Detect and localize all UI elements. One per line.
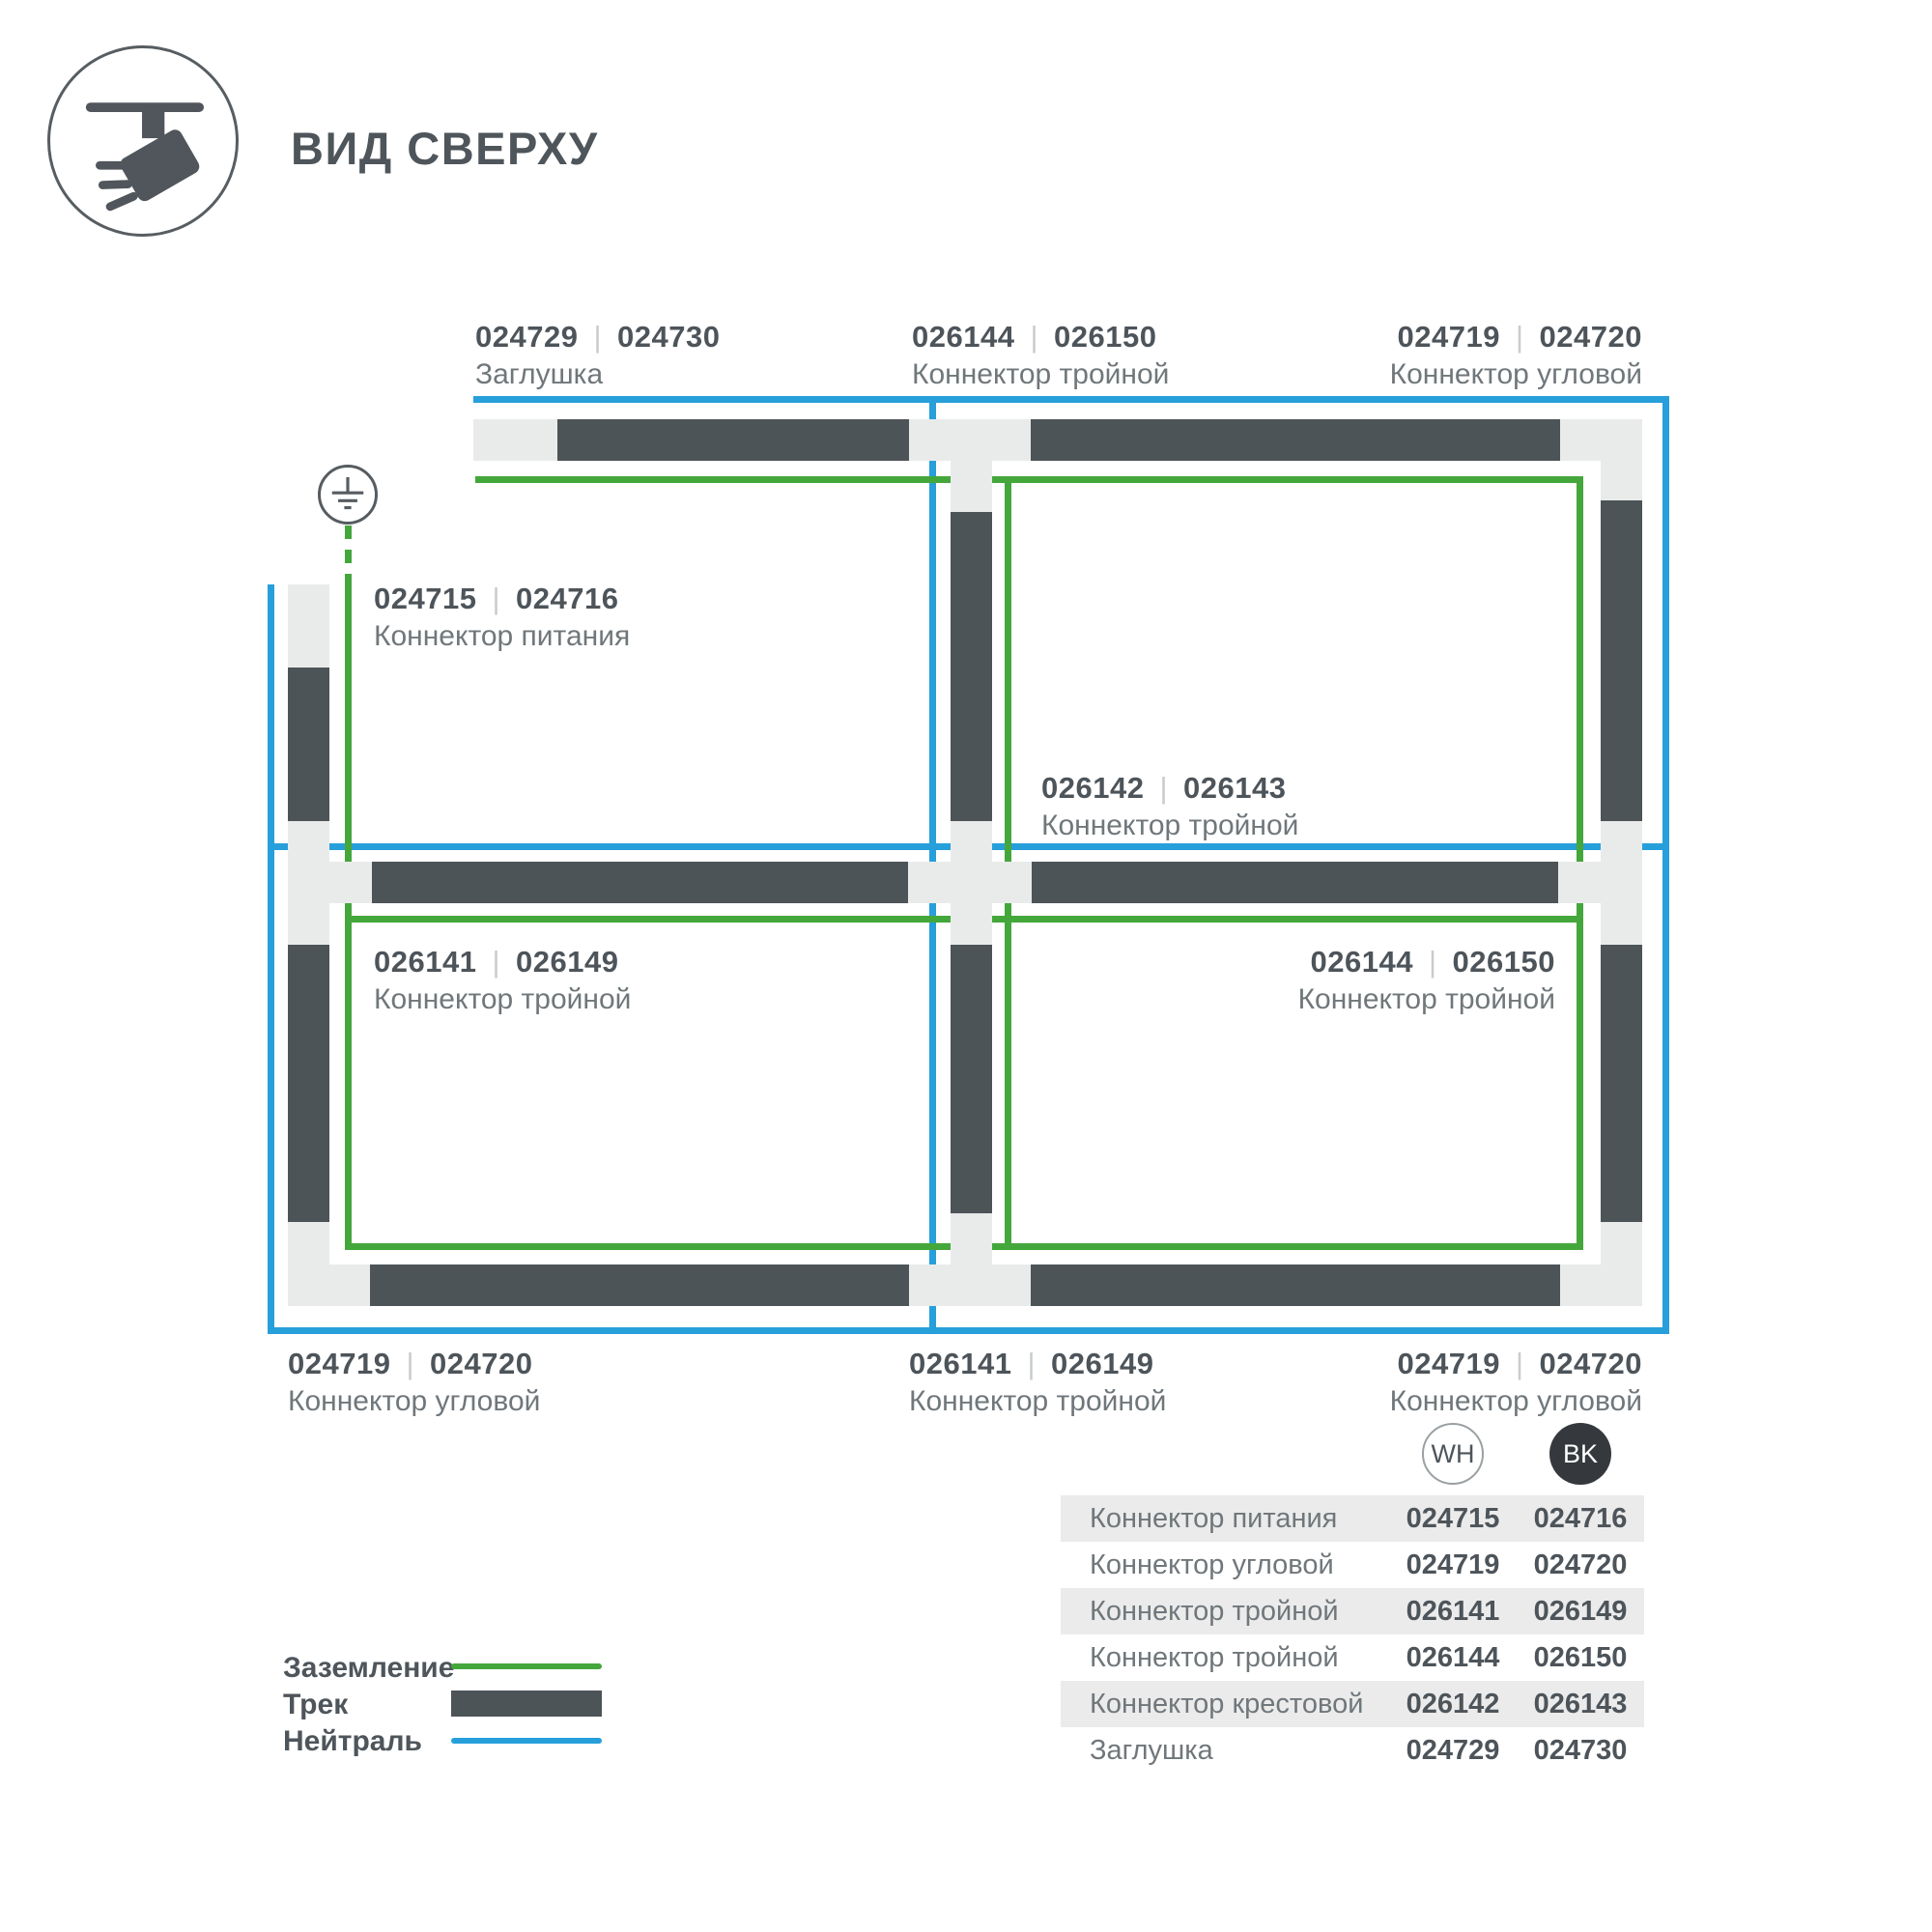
connector-cross-horizontal (908, 862, 1032, 903)
label-tee-top: 026144|026150 Коннектор тройной (912, 322, 1169, 389)
neutral-line-top (473, 396, 1669, 403)
label-cross-connector: 026142|026143 Коннектор тройной (1041, 773, 1298, 840)
legend-neutral-line-swatch (451, 1738, 602, 1744)
track-left (288, 584, 329, 1306)
label-corner-topright: 024719|024720 Коннектор угловой (1390, 322, 1642, 389)
label-tee-cell-bottomleft: 026141|026149 Коннектор тройной (374, 947, 631, 1014)
neutral-line-left (268, 584, 274, 1334)
table-row: Коннектор питания 024715 024716 (1061, 1495, 1644, 1542)
track-top (473, 419, 1642, 461)
label-endcap-top: 024729|024730 Заглушка (475, 322, 720, 389)
neutral-line-bottom (268, 1327, 1669, 1334)
neutral-line-right (1662, 396, 1669, 1334)
table-row: Коннектор угловой 024719 024720 (1061, 1542, 1644, 1588)
connector-tee-right-stub (1558, 862, 1642, 903)
parts-table: Коннектор питания 024715 024716 Коннекто… (1061, 1495, 1644, 1774)
label-tee-bottom: 026141|026149 Коннектор тройной (909, 1349, 1166, 1416)
legend-item-neutral: Нейтраль (283, 1727, 422, 1756)
connector-corner-bottomright-h (1560, 1264, 1642, 1306)
page: ВИД СВЕРХУ (0, 0, 1932, 1932)
connector-tee-bottom-stub (951, 1213, 992, 1306)
connector-corner-topright-v (1601, 419, 1642, 500)
label-tee-cell-bottomright: 026144|026150 Коннектор тройной (1298, 947, 1555, 1014)
table-row: Коннектор тройной 026141 026149 (1061, 1588, 1644, 1634)
legend-ground-line-swatch (451, 1663, 602, 1669)
label-corner-bottomright: 024719|024720 Коннектор угловой (1390, 1349, 1642, 1416)
connector-power (288, 584, 329, 668)
connector-tee-top-stub (951, 419, 992, 512)
connector-corner-bottomleft-h (288, 1264, 370, 1306)
ground-line-top (475, 476, 1583, 483)
ground-symbol-icon (318, 465, 378, 525)
connector-endcap-top (473, 419, 557, 461)
wh-badge: WH (1422, 1423, 1484, 1485)
legend-track-bar-swatch (451, 1690, 602, 1717)
legend-item-track: Трек (283, 1690, 348, 1719)
connector-tee-left-stub (288, 862, 372, 903)
table-row: Коннектор тройной 026144 026150 (1061, 1634, 1644, 1681)
label-corner-bottomleft: 024719|024720 Коннектор угловой (288, 1349, 540, 1416)
legend-item-ground: Заземление (283, 1654, 454, 1683)
label-power-connector: 024715|024716 Коннектор питания (374, 583, 630, 651)
spotlight-icon (47, 45, 239, 237)
table-row: Коннектор крестовой 026142 026143 (1061, 1681, 1644, 1727)
table-row: Заглушка 024729 024730 (1061, 1727, 1644, 1774)
ground-line-dashed (345, 526, 352, 587)
bk-badge: BK (1549, 1423, 1611, 1485)
page-title: ВИД СВЕРХУ (291, 122, 599, 175)
